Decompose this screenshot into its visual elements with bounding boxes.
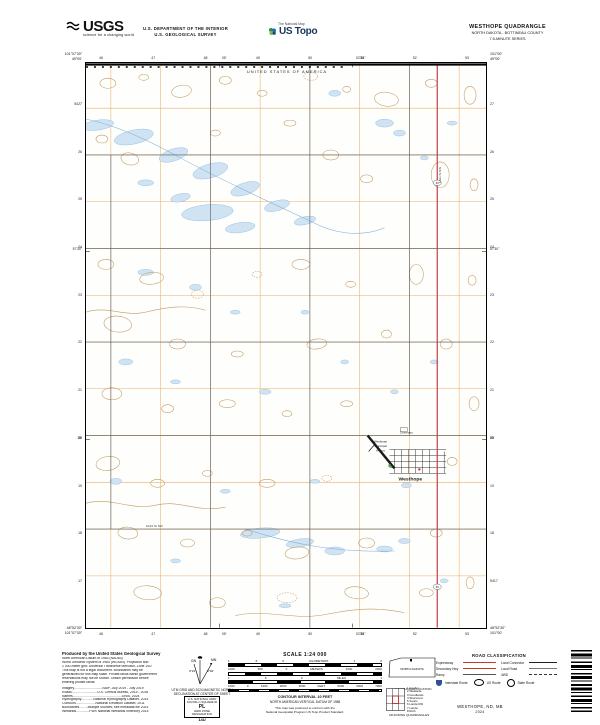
interstate-route-label: Interstate Route <box>445 681 468 685</box>
main-street-label: Main St NW <box>438 167 442 183</box>
minute-label: 55' <box>52 436 82 440</box>
topographic-map-canvas: 83 83 UNITED STATES OF AMERICA Cemetery … <box>86 63 486 628</box>
magnetic-north-label: MN <box>211 658 217 662</box>
usng-zone: 14U <box>185 717 219 722</box>
legend-label: 4WD <box>501 673 529 677</box>
minute-label: 05' <box>222 632 226 636</box>
usgs-tagline: science for a changing world <box>83 33 134 37</box>
corner-coords-top-left: 101°07'30" 49°00' <box>46 52 82 61</box>
local-road-line-sample <box>529 668 557 669</box>
scale-tick: 0 <box>282 660 284 663</box>
section-street-label: 103rd St NW <box>146 524 163 528</box>
road-classification-title: ROAD CLASSIFICATION <box>436 653 562 658</box>
scale-tick: 1 <box>380 677 382 680</box>
conformance-note: This map was produced to conform with th… <box>228 707 382 715</box>
usng-zone-label: GRID ZONE DESIGNATION <box>185 710 219 717</box>
us-topo-map-sheet: USGS science for a changing world U.S. D… <box>0 0 600 725</box>
scale-tick: 1 <box>354 660 356 663</box>
quad-series: 7.5-MINUTE SERIES <box>420 36 595 42</box>
scale-tick: 2000 <box>280 685 287 688</box>
produced-by: Produced by the United States Geological… <box>62 652 190 656</box>
grid-label: 22 <box>66 340 82 344</box>
scale-tick: 1000 <box>228 668 235 671</box>
adjoining-quads-caption: ADJOINING QUADRANGLES <box>376 713 442 717</box>
grid-label: 48 <box>204 56 208 61</box>
scale-tick: 6000 <box>356 685 363 688</box>
route-shield-number: 83 <box>436 585 440 589</box>
corner-lon: 101°07'30" <box>42 631 82 636</box>
section-roads <box>86 63 486 627</box>
mn-angle: 3°04' <box>207 669 214 673</box>
airport-label-1: Westhope <box>374 440 388 444</box>
utm-northing-labels-right: 272625242322212019185417 <box>490 62 506 629</box>
adjoining-quad-diagram <box>386 688 405 716</box>
state-name: NORTH DAKOTA <box>400 667 424 671</box>
state-route-shield-icon <box>507 679 515 687</box>
scale-tick: 0 <box>286 668 288 671</box>
grid-label: 23 <box>490 293 506 297</box>
grid-label: 18 <box>490 531 506 535</box>
scale-tick: 5000 <box>337 685 344 688</box>
grid-label: 21 <box>490 388 506 392</box>
grid-label: 50 <box>308 56 312 61</box>
scale-tick: 1000 <box>228 685 235 688</box>
usng-box: U.S. NATIONAL GRID 100,000-m SQUARE ID P… <box>184 696 220 718</box>
department-heading: U.S. DEPARTMENT OF THE INTERIOR U.S. GEO… <box>143 26 228 37</box>
scale-tick: 0 <box>301 677 303 680</box>
declination-diagram: GN MN 0°21' 3°04' <box>186 652 220 693</box>
scale-tick: 1 <box>228 677 230 680</box>
grid-label: 53 <box>465 632 469 637</box>
4wd-line-sample <box>529 674 557 675</box>
grid-label: 27 <box>490 102 506 106</box>
department-line2: U.S. GEOLOGICAL SURVEY <box>143 32 228 38</box>
grid-label: 26 <box>490 150 506 154</box>
legend-label: Local Connector <box>501 661 529 665</box>
local-connector-line-sample <box>529 662 557 663</box>
boundary-label: UNITED STATES OF AMERICA <box>247 69 327 74</box>
legend-label: Expressway <box>436 661 463 665</box>
scale-bar-m <box>228 672 382 676</box>
production-notes: North American Datum of 1983 (NAD83)Worl… <box>62 657 190 684</box>
scale-tick: .5 <box>264 677 267 680</box>
ustopo-brand-text: US Topo <box>279 26 317 37</box>
scale-tick: 500 <box>258 668 263 671</box>
quad-location-marker <box>410 659 412 661</box>
scale-bar-km <box>228 663 382 667</box>
adjoining-quad-names: 1 Coulter2 Waskada3 Goodlands4 Sherwood5… <box>407 687 423 713</box>
scale-tick: 0 <box>247 685 249 688</box>
scale-tick: 3000 <box>299 685 306 688</box>
legend-label: Secondary Hwy <box>436 667 463 671</box>
park-square <box>388 464 390 466</box>
legend-label: Local Road <box>501 667 529 671</box>
grid-label: 19 <box>490 484 506 488</box>
secondary-hwy-line-sample <box>463 668 496 669</box>
true-north-star <box>198 656 203 659</box>
road-classification: ROAD CLASSIFICATION Expressway Local Con… <box>436 653 562 687</box>
minute-label: 02'30" <box>356 632 365 636</box>
sheet-year: 2024 <box>438 710 522 714</box>
grid-north-label: GN <box>191 659 197 663</box>
grid-label: 50 <box>308 632 312 637</box>
grid-label: 25 <box>490 197 506 201</box>
production-credits: Produced by the United States Geological… <box>62 652 190 714</box>
corner-lat: 49°00' <box>490 57 502 62</box>
highway-83: 83 83 <box>433 63 441 627</box>
cemetery-label: Cemetery <box>400 431 413 435</box>
minute-label: 57'30" <box>52 247 82 251</box>
grid-label: 53 <box>465 56 469 61</box>
contour-interval: CONTOUR INTERVAL 10 FEET <box>228 695 382 699</box>
grid-label: 25 <box>66 197 82 201</box>
grid-label: 22 <box>490 340 506 344</box>
grid-label: 47 <box>151 56 155 61</box>
department-line1: U.S. DEPARTMENT OF THE INTERIOR <box>143 26 228 32</box>
quadrangle-title-block: WESTHOPE QUADRANGLE NORTH DAKOTA - BOTTI… <box>420 24 595 42</box>
state-route-label: State Route <box>518 681 535 685</box>
airport-label-2: Municipal <box>374 444 387 448</box>
scale-tick: 2 <box>380 660 382 663</box>
scale-bar-ft <box>228 689 382 693</box>
minute-label: 02'30" <box>356 56 365 60</box>
grid-label: 23 <box>66 293 82 297</box>
building-dot <box>418 468 420 470</box>
corner-coords-bottom-left: 48°52'30" 101°07'30" <box>42 626 82 635</box>
grid-label: 49 <box>256 56 260 61</box>
scale-title: SCALE 1:24 000 <box>228 652 382 658</box>
grid-label: 21 <box>66 388 82 392</box>
sheet-name-block: WESTHOPE, ND, MB 2024 <box>438 704 522 714</box>
gn-angle: 0°21' <box>189 669 196 673</box>
scale-tick: 2000 <box>375 668 382 671</box>
ustopo-logo: The National Map US Topo <box>268 22 317 37</box>
vertical-datum: NORTH AMERICAN VERTICAL DATUM OF 1988 <box>228 700 382 704</box>
us-route-label: US Route <box>487 681 501 685</box>
scale-tick: MILES <box>337 677 346 680</box>
grid-label: 5417 <box>490 579 506 583</box>
water-features <box>86 90 457 607</box>
conformance-line-2: National Geospatial Program US Topo Prod… <box>228 711 382 715</box>
corner-lon: 101°00' <box>490 52 502 57</box>
legend-label: Ramp <box>436 673 463 677</box>
grid-label: 26 <box>66 150 82 154</box>
scale-tick: 7000 <box>375 685 382 688</box>
grid-label: 17 <box>66 579 82 583</box>
map-body: 83 83 UNITED STATES OF AMERICA Cemetery … <box>85 62 487 629</box>
corner-lon: 101°00' <box>490 631 505 636</box>
grid-label: 52 <box>413 632 417 637</box>
minute-ticks <box>86 63 486 627</box>
utm-easting-labels-top: 4647484950515253 <box>85 56 487 61</box>
minute-label: 57'30" <box>490 247 499 251</box>
contour-lines <box>86 72 479 616</box>
grid-label: 47 <box>151 632 155 637</box>
scale-tick: KILOMETERS <box>309 660 328 663</box>
sheet-name: WESTHOPE, ND, MB <box>438 704 522 709</box>
grid-label: 19 <box>66 484 82 488</box>
production-note-line: entering private lands. <box>62 681 190 685</box>
international-boundary <box>86 63 486 67</box>
data-source-line: Wetlands..............FWS National Wetla… <box>62 710 190 714</box>
scale-tick: 1000 <box>346 668 353 671</box>
ustopo-pinwheel-icon <box>268 27 277 36</box>
utm-northing-labels-left: 542726252423222120191817 <box>66 62 82 629</box>
scale-tick: .5 <box>255 660 258 663</box>
grid-label: 52 <box>413 56 417 61</box>
scale-block: SCALE 1:24 000 1.50KILOMETERS12 10005000… <box>228 652 382 715</box>
corner-coords-top-right: 101°00' 49°00' <box>490 52 502 61</box>
scale-tick: FEET <box>318 685 326 688</box>
map-barcode <box>571 650 592 712</box>
scale-tick: 1 <box>228 660 230 663</box>
grid-label: 5427 <box>66 102 82 106</box>
airport-label-3: Airport <box>376 448 385 452</box>
scale-tick: 1000 <box>261 685 268 688</box>
grid-label: 46 <box>99 56 103 61</box>
corner-lat: 48°52'30" <box>490 626 505 631</box>
minute-label: 05' <box>222 56 226 60</box>
corner-coords-bottom-right: 48°52'30" 101°00' <box>490 626 505 635</box>
grid-label: 48 <box>204 632 208 637</box>
expressway-line-sample <box>463 662 496 664</box>
corner-lat: 49°00' <box>46 57 82 62</box>
utm-grid-lines <box>86 63 486 627</box>
grid-label: 18 <box>66 531 82 535</box>
usgs-logo-text: USGS <box>83 20 134 33</box>
grid-label: 46 <box>99 632 103 637</box>
interstate-shield-icon <box>436 680 442 686</box>
usgs-logo: USGS science for a changing world <box>66 20 134 37</box>
ramp-line-sample <box>463 674 496 675</box>
utm-easting-labels-bottom: 4647484950515253 <box>85 632 487 637</box>
us-route-shield-icon <box>474 679 484 686</box>
town-label: Westhope <box>399 476 423 482</box>
scale-tick: METERS <box>310 668 323 671</box>
usgs-wave-icon <box>66 20 80 33</box>
grid-label: 49 <box>256 632 260 637</box>
minute-label: 55' <box>490 436 494 440</box>
